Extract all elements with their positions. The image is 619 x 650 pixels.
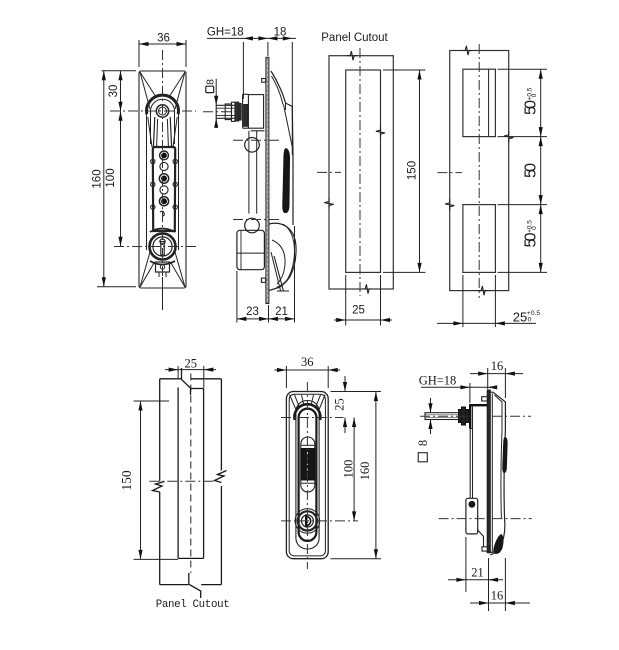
svg-text:23: 23 xyxy=(246,306,259,318)
svg-text:0: 0 xyxy=(531,226,538,230)
svg-text:16: 16 xyxy=(491,359,504,373)
svg-text:21: 21 xyxy=(471,566,484,580)
svg-text:GH=18: GH=18 xyxy=(419,374,457,388)
svg-text:18: 18 xyxy=(274,26,287,38)
svg-text:8: 8 xyxy=(205,79,217,85)
svg-text:25: 25 xyxy=(352,305,365,317)
svg-text:21: 21 xyxy=(275,306,288,318)
svg-text:8: 8 xyxy=(416,440,430,446)
svg-text:0: 0 xyxy=(531,93,538,97)
svg-text:25: 25 xyxy=(184,356,197,370)
svg-text:36: 36 xyxy=(301,355,314,369)
svg-text:50: 50 xyxy=(523,163,540,178)
svg-text:50: 50 xyxy=(523,100,540,115)
svg-text:150: 150 xyxy=(407,161,419,180)
svg-text:0: 0 xyxy=(528,316,532,323)
svg-text:Panel Cutout: Panel Cutout xyxy=(321,32,388,44)
svg-text:GH=18: GH=18 xyxy=(207,26,244,38)
svg-text:36: 36 xyxy=(157,33,170,45)
svg-text:150: 150 xyxy=(119,470,134,491)
svg-text:50: 50 xyxy=(523,232,540,247)
svg-text:160: 160 xyxy=(358,462,372,481)
svg-text:25: 25 xyxy=(333,398,347,411)
svg-text:16: 16 xyxy=(491,589,504,603)
svg-text:25: 25 xyxy=(513,309,527,324)
svg-text:100: 100 xyxy=(342,460,356,479)
svg-text:30: 30 xyxy=(108,85,120,98)
svg-text:160: 160 xyxy=(92,169,104,188)
svg-text:100: 100 xyxy=(105,168,117,187)
svg-text:Panel Cutout: Panel Cutout xyxy=(156,599,230,611)
